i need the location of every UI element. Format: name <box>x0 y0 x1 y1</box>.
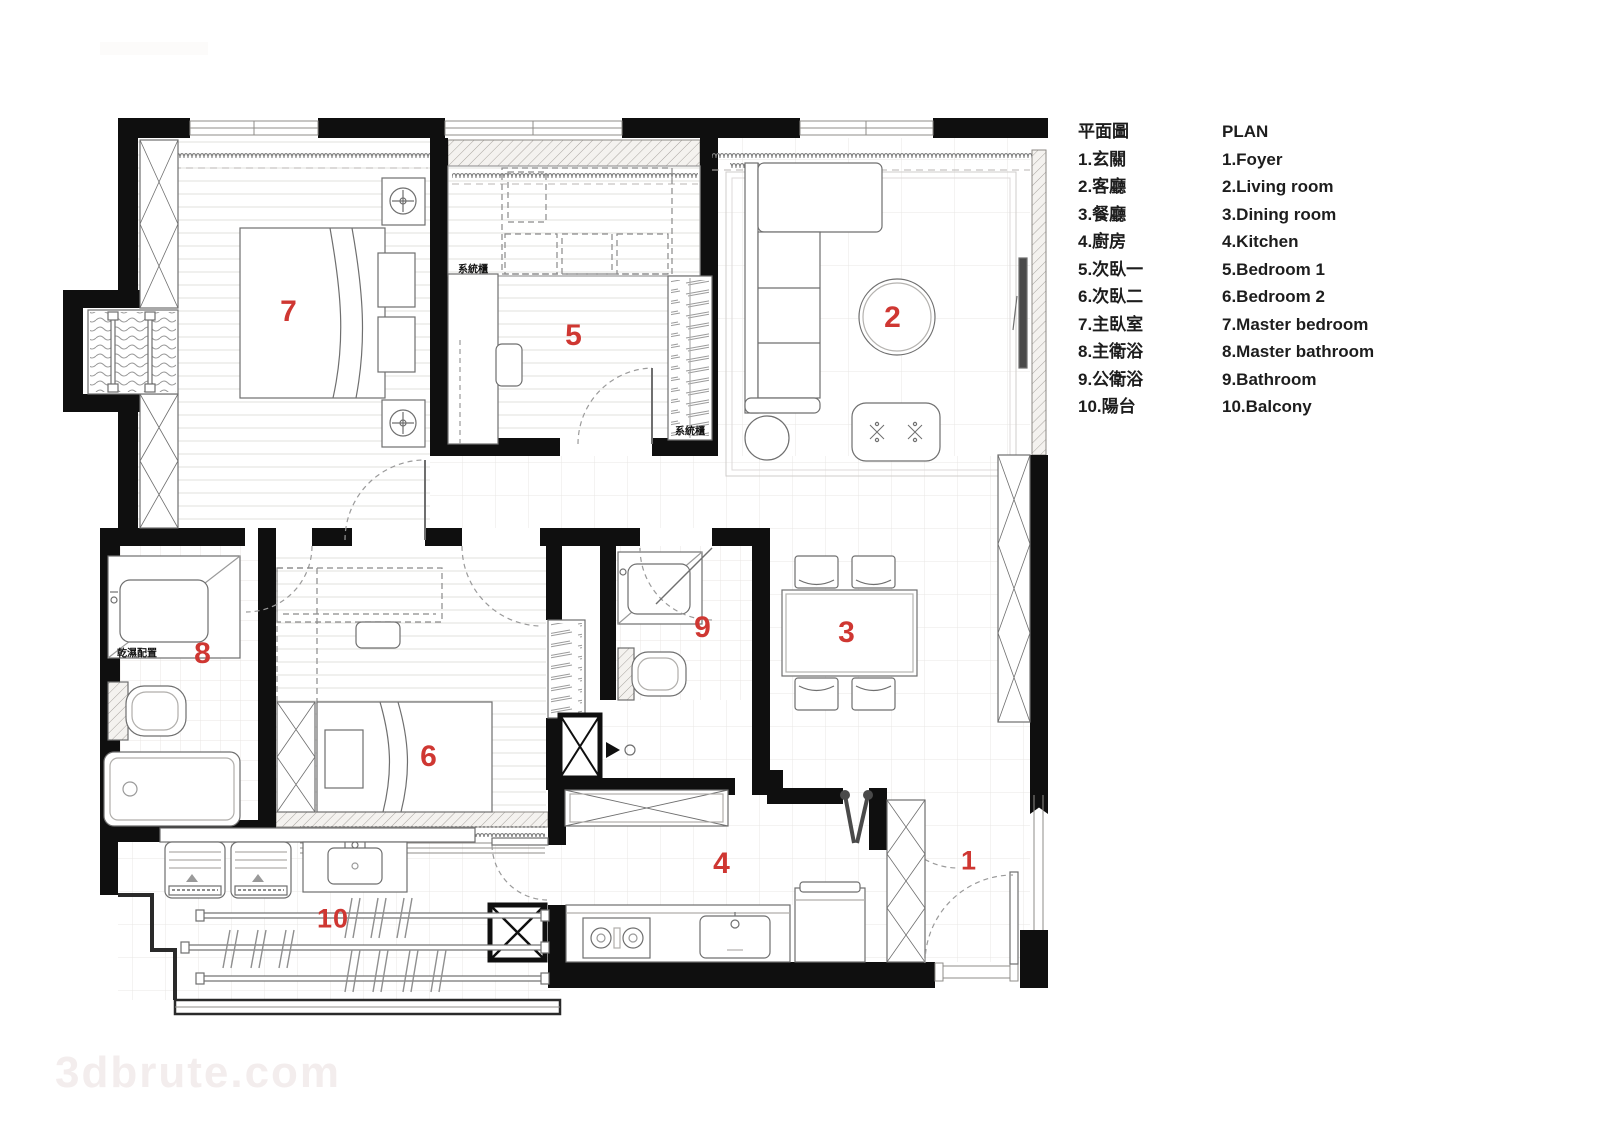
room-number-bathroom: 9 <box>694 613 712 643</box>
room-number-kitchen: 4 <box>713 849 731 879</box>
wardrobe <box>277 702 315 812</box>
floor-plan-page: 1 2 3 4 5 6 7 8 9 10 系統櫃 系統櫃 乾濕配置 平面圖 1.… <box>0 0 1600 1132</box>
legend-item: 1.Foyer <box>1222 146 1442 174</box>
legend-item: 7.Master bedroom <box>1222 311 1442 339</box>
legend-title-en: PLAN <box>1222 118 1442 146</box>
system-cabinet-label: 系統櫃 <box>458 261 488 276</box>
washer <box>231 842 291 898</box>
upper-cabinet <box>565 790 728 826</box>
faded-artifact <box>100 42 208 55</box>
washer <box>165 842 225 898</box>
toilet <box>108 682 186 740</box>
legend-item: 10.陽台 <box>1078 393 1208 421</box>
legend-title-zh: 平面圖 <box>1078 118 1208 146</box>
closet <box>548 620 585 718</box>
refrigerator <box>795 882 865 962</box>
bed <box>317 702 492 812</box>
legend-item: 4.廚房 <box>1078 228 1208 256</box>
sink <box>618 552 702 624</box>
legend-item: 10.Balcony <box>1222 393 1442 421</box>
legend-chinese: 平面圖 1.玄關 2.客廳 3.餐廳 4.廚房 5.次臥一 6.次臥二 7.主臥… <box>1078 118 1208 421</box>
legend-item: 8.主衛浴 <box>1078 338 1208 366</box>
laundry-counter <box>160 828 475 842</box>
shoe-cabinet <box>887 800 925 962</box>
toilet <box>618 648 686 700</box>
sink <box>108 556 240 658</box>
system-cabinet-label: 系統櫃 <box>675 423 705 438</box>
side-table <box>745 416 789 460</box>
legend-item: 8.Master bathroom <box>1222 338 1442 366</box>
shaft <box>560 715 600 778</box>
legend-item: 2.Living room <box>1222 173 1442 201</box>
tv-bench <box>852 403 940 461</box>
bathtub <box>104 752 240 826</box>
dry-wet-config-label: 乾濕配置 <box>117 645 157 660</box>
legend-item: 5.Bedroom 1 <box>1222 256 1442 284</box>
room-number-master-bath: 8 <box>194 639 212 669</box>
legend-item: 2.客廳 <box>1078 173 1208 201</box>
stove <box>583 918 650 958</box>
legend-item: 9.公衛浴 <box>1078 366 1208 394</box>
laundry-sink <box>303 842 407 892</box>
room-number-living-room: 2 <box>884 303 902 333</box>
legend-item: 6.次臥二 <box>1078 283 1208 311</box>
legend-item: 3.Dining room <box>1222 201 1442 229</box>
wardrobe <box>668 276 712 440</box>
room-number-dining-room: 3 <box>838 618 856 648</box>
room-number-balcony: 10 <box>317 906 349 933</box>
legend-item: 1.玄關 <box>1078 146 1208 174</box>
desk-chair <box>356 622 400 648</box>
kitchen-sink <box>700 912 770 958</box>
watermark: 3dbrute.com <box>55 1048 341 1098</box>
legend-item: 7.主臥室 <box>1078 311 1208 339</box>
legend-item: 5.次臥一 <box>1078 256 1208 284</box>
ac-platform <box>88 310 178 394</box>
tall-cabinet <box>998 455 1030 722</box>
room-number-bedroom1: 5 <box>565 321 583 351</box>
legend-item: 3.餐廳 <box>1078 201 1208 229</box>
legend-item: 4.Kitchen <box>1222 228 1442 256</box>
room-number-bedroom2: 6 <box>420 742 438 772</box>
legend-english: PLAN 1.Foyer 2.Living room 3.Dining room… <box>1222 118 1442 421</box>
room-number-foyer: 1 <box>961 848 977 875</box>
legend-item: 9.Bathroom <box>1222 366 1442 394</box>
room-number-master-bedroom: 7 <box>280 297 298 327</box>
legend-item: 6.Bedroom 2 <box>1222 283 1442 311</box>
